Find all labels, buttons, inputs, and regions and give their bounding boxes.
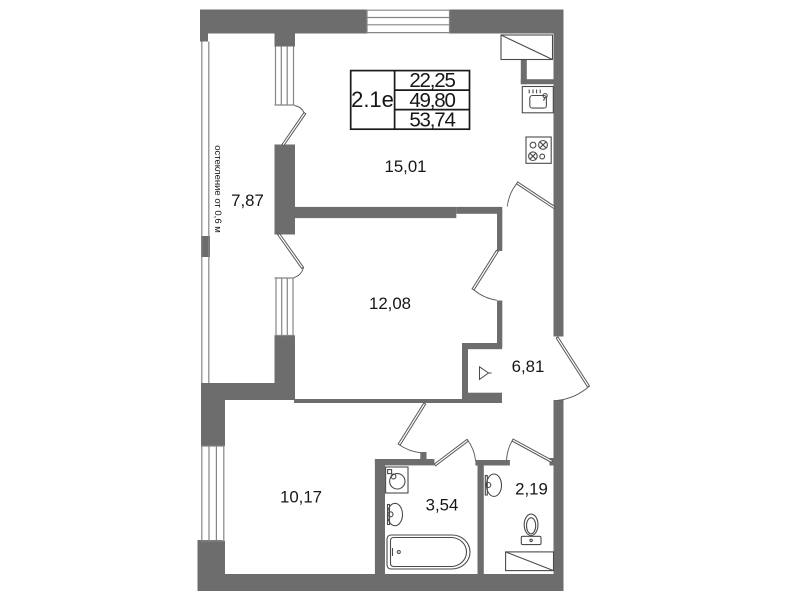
svg-text:2.1е: 2.1е xyxy=(351,87,394,112)
svg-text:7,87: 7,87 xyxy=(231,191,264,210)
svg-text:2,19: 2,19 xyxy=(515,480,548,499)
svg-text:6,81: 6,81 xyxy=(512,357,545,376)
svg-text:10,17: 10,17 xyxy=(280,488,322,507)
svg-text:12,08: 12,08 xyxy=(369,294,411,313)
svg-text:3,54: 3,54 xyxy=(426,496,459,515)
svg-text:остекление от 0,6 м: остекление от 0,6 м xyxy=(212,145,223,233)
svg-text:15,01: 15,01 xyxy=(385,157,427,176)
svg-text:53,74: 53,74 xyxy=(409,109,455,132)
